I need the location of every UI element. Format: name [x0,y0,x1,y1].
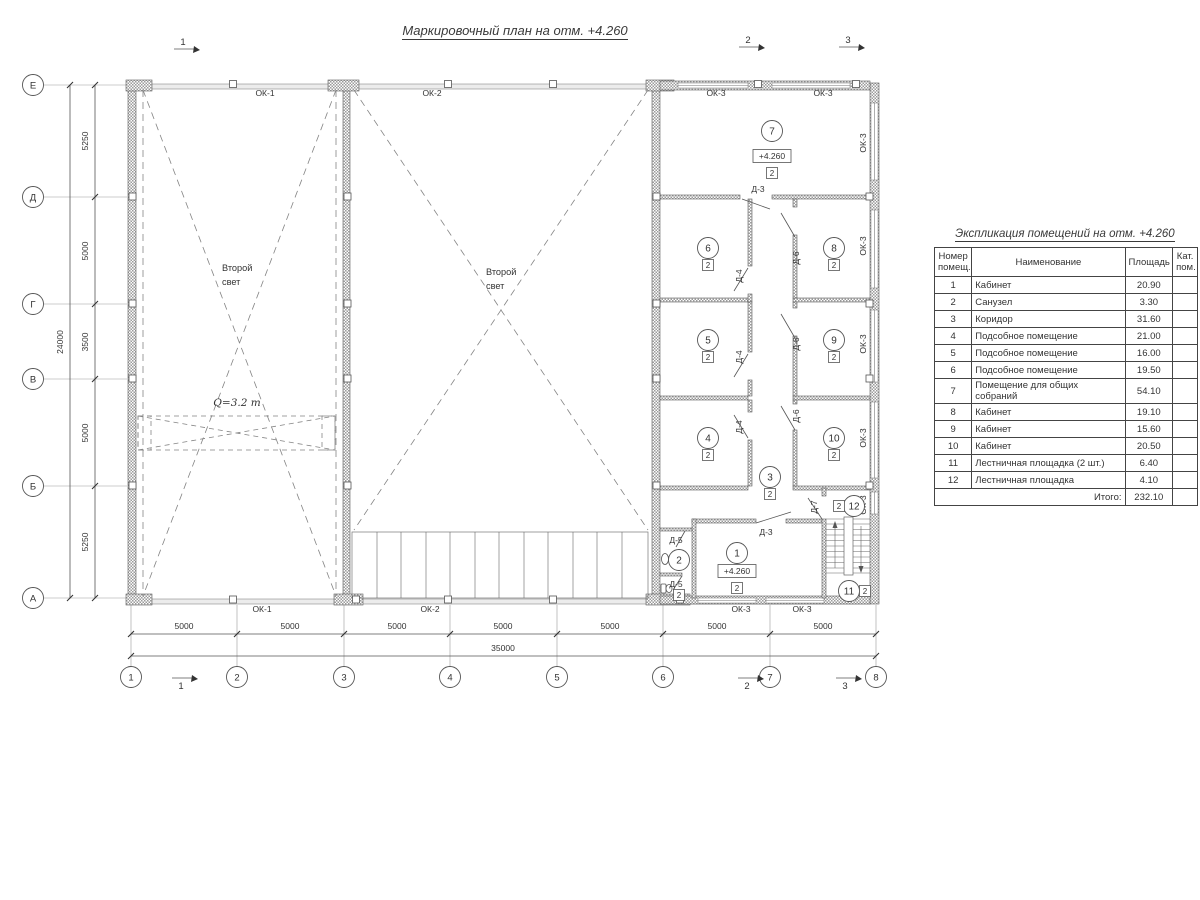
elevation-mark: +4.260 [724,566,751,576]
table-row: 8Кабинет19.10 [935,404,1198,421]
window-label: ОК-2 [422,88,441,98]
door-label: Д-5 [669,535,683,545]
dim-label: 5000 [601,621,620,631]
table-row: 1Кабинет20.90 [935,277,1198,294]
window-label: ОК-2 [420,604,439,614]
room-number: 2 [676,556,682,567]
dim-label: 5000 [494,621,513,631]
dim-label: 5000 [80,423,90,442]
drawing-sheet: 24000 5250 5000 3500 5000 5250 5000 5000… [0,0,1200,900]
section-mark-label: 3 [845,35,850,46]
category-box: 2 [706,451,711,460]
room-number: 9 [831,336,837,347]
category-box: 2 [768,490,773,499]
dim-label: 5000 [175,621,194,631]
second-light-label: свет [486,281,505,291]
section-mark-label: 1 [180,37,185,48]
room-number: 11 [844,587,855,598]
second-light-label: Второй [486,267,516,277]
crane-outline [138,416,335,450]
section-mark-2-bottom: 2 [738,675,764,692]
ramp-stripes [352,532,648,598]
section-mark-3-bottom: 3 [836,675,862,692]
table-total-row: Итого: 232.10 [935,489,1198,506]
elevation-mark: +4.260 [759,151,786,161]
second-light-label: свет [222,277,241,287]
room-number: 12 [848,502,860,513]
axis-bubble: 4 [447,673,452,684]
room-number: 5 [705,336,711,347]
section-mark-1-top: 1 [174,37,200,53]
table-row: 2Санузел3.30 [935,294,1198,311]
axis-bubble: Г [30,300,35,311]
category-box: 2 [832,353,837,362]
sink-icon [662,554,669,565]
door-label: Д-5 [669,579,683,589]
window-label: ОК-3 [813,88,832,98]
category-box: 2 [863,587,868,596]
dimension-labels: 24000 5250 5000 3500 5000 5250 5000 5000… [55,131,833,653]
dim-label: 5000 [708,621,727,631]
axis-bubble: 7 [767,673,772,684]
table-title: Экспликация помещений на отм. +4.260 [930,224,1200,242]
door-label: Д-6 [791,409,801,423]
dim-label: 5000 [80,241,90,260]
room-number: 10 [828,434,840,445]
category-box: 2 [832,261,837,270]
second-light-label: Второй [222,263,252,273]
section-mark-label: 3 [842,681,847,692]
axis-bubble: 3 [341,673,346,684]
category-box: 2 [735,584,740,593]
dimension-lines [67,82,879,659]
section-mark-3-top: 3 [839,35,865,51]
crane-capacity-label: Q=3.2 т [213,397,260,409]
axis-bubble: 2 [234,673,239,684]
stairs [826,517,870,575]
room-number: 7 [769,127,775,138]
section-mark-label: 1 [178,681,183,692]
table-row: 7Помещение для общих собраний54.10 [935,379,1198,404]
table-row: 6Подсобное помещение19.50 [935,362,1198,379]
section-mark-label: 2 [744,681,749,692]
dim-label: 5250 [80,532,90,551]
grid-extension-lines [44,85,876,666]
total-value: 232.10 [1125,489,1173,506]
category-box: 2 [832,451,837,460]
window-label: ОК-3 [858,236,868,255]
room-number: 3 [767,473,773,484]
table-row: 10Кабинет20.50 [935,438,1198,455]
room-number: 1 [734,549,740,560]
axis-bubble: 8 [873,673,878,684]
col-header-num: Номер помещ. [935,248,972,277]
axis-bubble: В [30,375,36,386]
door-label: Д-6 [791,251,801,265]
window-label: ОК-3 [731,604,750,614]
door-label: Д-7 [809,500,819,514]
dim-label: 5000 [814,621,833,631]
dim-label: 3500 [80,332,90,351]
col-header-name: Наименование [972,248,1125,277]
table-row: 9Кабинет15.60 [935,421,1198,438]
section-mark-1-bottom: 1 [172,675,198,692]
axis-bubble: 6 [660,673,665,684]
room-number: 8 [831,244,837,255]
toilet-icon [661,584,666,593]
room-schedule-table: Номер помещ. Наименование Площадь Кат. п… [934,247,1198,506]
axis-bubble: Б [30,482,36,493]
category-box: 2 [837,502,842,511]
door-label: Д-4 [734,420,744,434]
door-label: Д-4 [734,350,744,364]
table-row: 5Подсобное помещение16.00 [935,345,1198,362]
dim-label: 5250 [80,131,90,150]
table-row: 12Лестничная площадка4.10 [935,472,1198,489]
col-header-cat: Кат. пом. [1173,248,1198,277]
window-label: ОК-1 [252,604,271,614]
dim-label: 24000 [55,330,65,354]
dim-label: 5000 [281,621,300,631]
drawing-title-text: Маркировочный план на отм. +4.260 [402,23,627,40]
axis-bubble: Е [30,81,36,92]
window-label: ОК-1 [255,88,274,98]
drawing-title: Маркировочный план на отм. +4.260 [300,22,730,40]
table-row: 3Коридор31.60 [935,311,1198,328]
axis-bubble: 5 [554,673,559,684]
table-row: 4Подсобное помещение21.00 [935,328,1198,345]
window-label: ОК-3 [858,133,868,152]
section-mark-label: 2 [745,35,750,46]
table-row: 11Лестничная площадка (2 шт.)6.40 [935,455,1198,472]
dim-label: 35000 [491,643,515,653]
door-label: Д-3 [751,184,765,194]
section-marks: 1 2 3 1 2 3 [172,35,865,692]
table-title-text: Экспликация помещений на отм. +4.260 [955,228,1174,242]
axis-bubble: А [30,594,37,605]
axis-bubble: Д [30,193,37,204]
window-label: ОК-3 [858,334,868,353]
window-label: ОК-3 [792,604,811,614]
table-header-row: Номер помещ. Наименование Площадь Кат. п… [935,248,1198,277]
hall-annotations: Второй свет Второй свет Q=3.2 т [213,263,516,409]
category-box: 2 [706,261,711,270]
section-mark-2-top: 2 [739,35,765,51]
axis-bubble: 1 [128,673,133,684]
total-label: Итого: [935,489,1126,506]
door-label: Д-4 [734,269,744,283]
col-header-area: Площадь [1125,248,1173,277]
category-box: 2 [677,591,682,600]
room-number: 4 [705,434,711,445]
room-number: 6 [705,244,711,255]
window-label: ОК-3 [858,428,868,447]
category-box: 2 [706,353,711,362]
door-label: Д-6 [791,337,801,351]
window-label: ОК-3 [706,88,725,98]
door-label: Д-3 [759,527,773,537]
dim-label: 5000 [388,621,407,631]
room-schedule: Номер помещ. Наименование Площадь Кат. п… [934,247,1198,506]
category-box: 2 [770,169,775,178]
roof-dashed-lines [143,90,648,596]
